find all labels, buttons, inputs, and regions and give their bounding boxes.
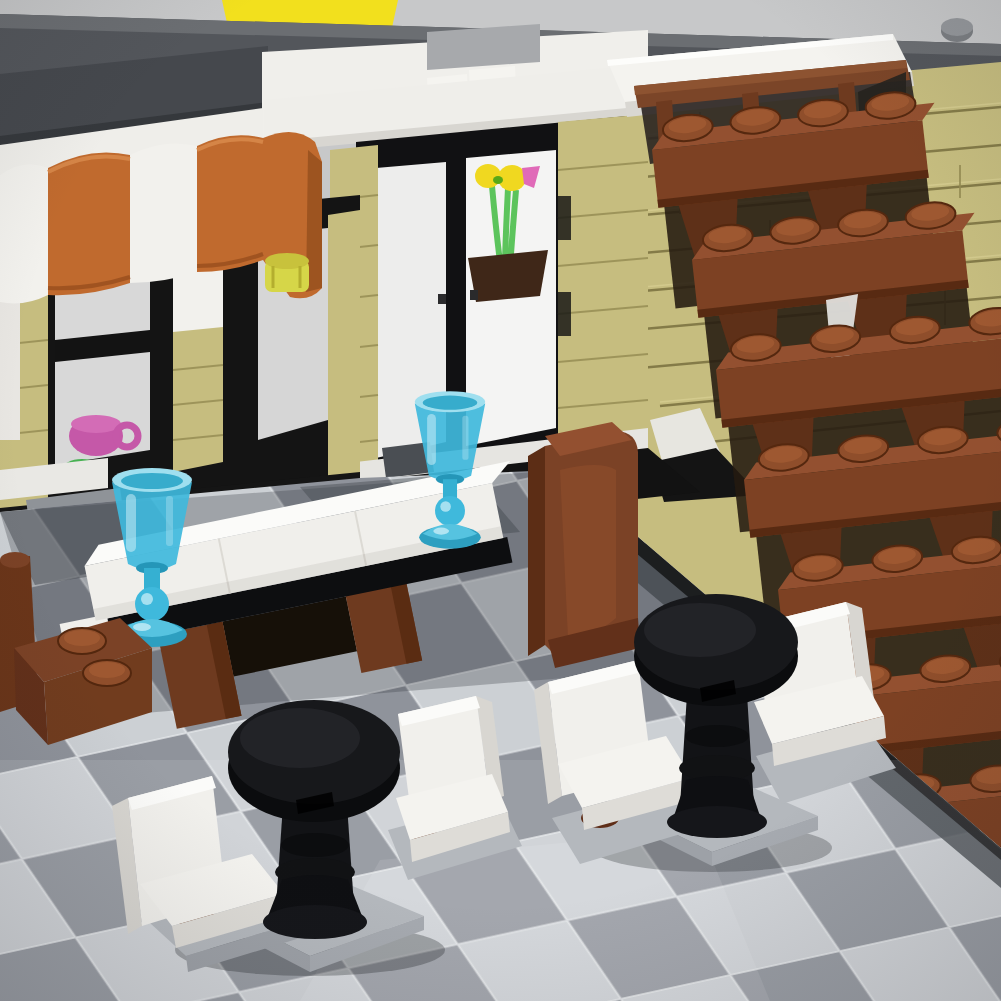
scene — [0, 0, 1001, 1001]
lego-cafe-photo — [0, 0, 1001, 1001]
vignette — [0, 0, 1001, 1001]
